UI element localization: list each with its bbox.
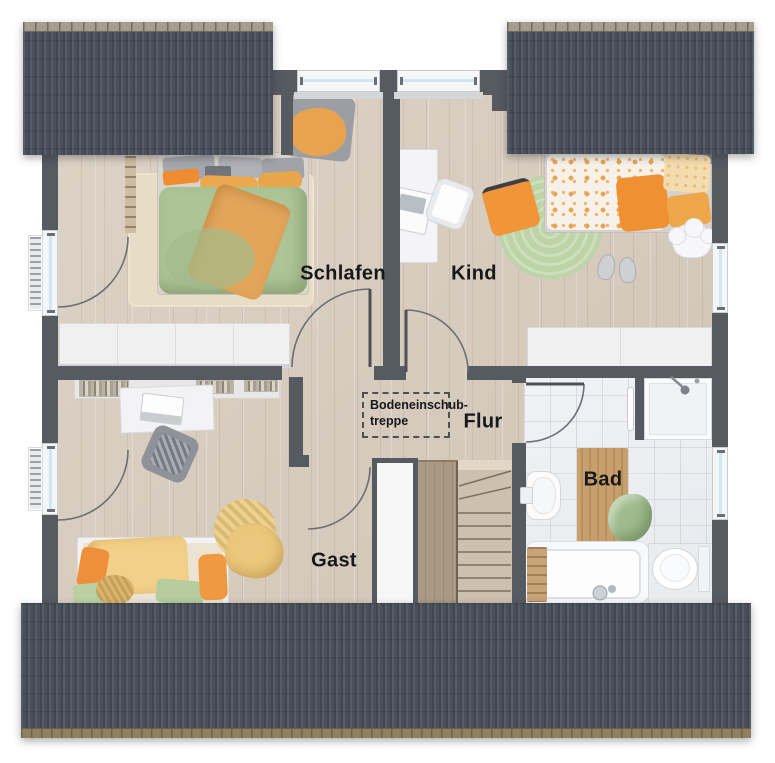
roof-bottom — [21, 603, 751, 738]
washbasin-tap — [520, 487, 533, 504]
sofa-pillow-green — [155, 578, 205, 606]
stair-landing — [416, 460, 458, 604]
room-label-bad: Bad — [584, 469, 623, 492]
wall-bad-left-top — [512, 366, 526, 383]
wardrobe — [59, 323, 290, 368]
attic-hatch-label-line1: Bodeneinschub- — [370, 397, 448, 413]
wall-dormer-stub — [281, 95, 293, 155]
sofa-pillow-orange — [198, 553, 228, 600]
roof-eave — [21, 728, 751, 738]
sofa-pillow-woven — [96, 575, 134, 605]
window-gast — [42, 443, 58, 515]
room-label-kind: Kind — [451, 263, 497, 286]
bath-caddy — [527, 547, 547, 602]
window-glass — [49, 449, 52, 509]
window-glass — [402, 79, 475, 82]
window-bad — [712, 447, 728, 520]
window-dormer-right — [397, 70, 480, 92]
wall-dormer-stub — [492, 95, 508, 111]
towel-rail — [627, 387, 634, 431]
wall-outer-right — [712, 520, 728, 604]
staircase — [458, 460, 512, 604]
duvet-fold — [165, 228, 255, 290]
bathtub-basin — [533, 549, 641, 599]
floor-plan-attic: Schlafen Kind Flur Gast Bad Bodeneinschu… — [0, 0, 775, 763]
room-label-flur: Flur — [464, 411, 503, 434]
roof-top-left — [23, 22, 273, 155]
radiator — [29, 448, 42, 510]
window-glass — [719, 249, 722, 307]
bed-pillow-dotted — [663, 152, 712, 193]
roof-top-right — [507, 22, 754, 154]
wall-outer-left — [42, 515, 58, 604]
wall-kind-bad — [512, 366, 712, 378]
window-kind — [712, 243, 728, 313]
radiator — [29, 236, 42, 310]
wall-shower-stub — [635, 378, 644, 440]
wall-bad-left — [512, 443, 526, 604]
wall-kind-stub — [467, 366, 512, 380]
wall-flur-stub — [374, 366, 406, 380]
stair-enclosure-panel — [372, 458, 418, 604]
wall-gast-flur — [289, 377, 303, 467]
toilet-cistern — [698, 546, 710, 592]
window-dormer-left — [297, 70, 380, 92]
window-sill — [294, 92, 383, 99]
wall-gast-foot — [289, 455, 309, 467]
wall-dormer — [270, 70, 297, 95]
room-label-gast: Gast — [311, 550, 357, 573]
decor-ladder — [125, 156, 136, 233]
wall-schlafen-gast — [42, 366, 282, 380]
wall-divider-schlafen-kind — [383, 78, 400, 367]
attic-hatch-label-line2: treppe — [370, 413, 448, 429]
roof-ridge — [507, 22, 754, 32]
window-schlafen — [42, 230, 58, 316]
wall-dormer — [480, 70, 508, 95]
books — [244, 380, 278, 392]
window-glass — [719, 453, 722, 514]
window-glass — [49, 236, 52, 310]
washbasin-bowl — [531, 477, 556, 514]
toilet-seat — [660, 554, 690, 582]
room-label-schlafen: Schlafen — [300, 263, 386, 286]
laptop — [139, 393, 184, 426]
attic-hatch-box: Bodeneinschub- treppe — [362, 392, 450, 438]
wall-outer-right — [712, 313, 728, 447]
window-glass — [302, 79, 375, 82]
window-sill — [394, 92, 483, 99]
roof-ridge — [23, 22, 273, 32]
shower-tray — [644, 378, 712, 440]
